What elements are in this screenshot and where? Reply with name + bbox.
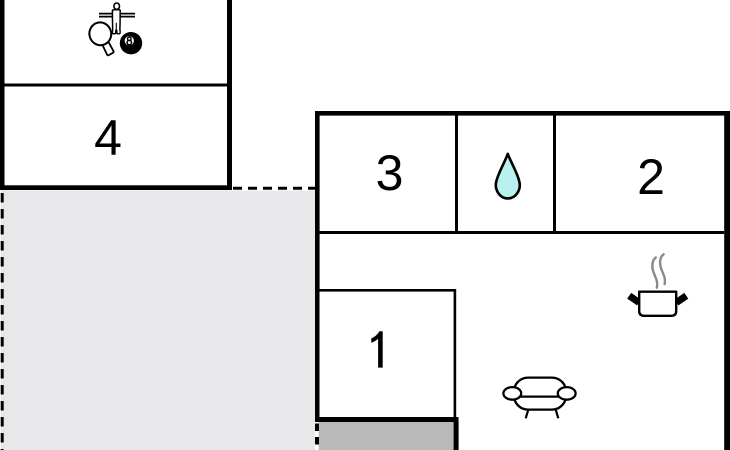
svg-text:3: 3 xyxy=(376,145,404,201)
svg-text:4: 4 xyxy=(94,110,122,166)
svg-text:2: 2 xyxy=(637,149,665,205)
